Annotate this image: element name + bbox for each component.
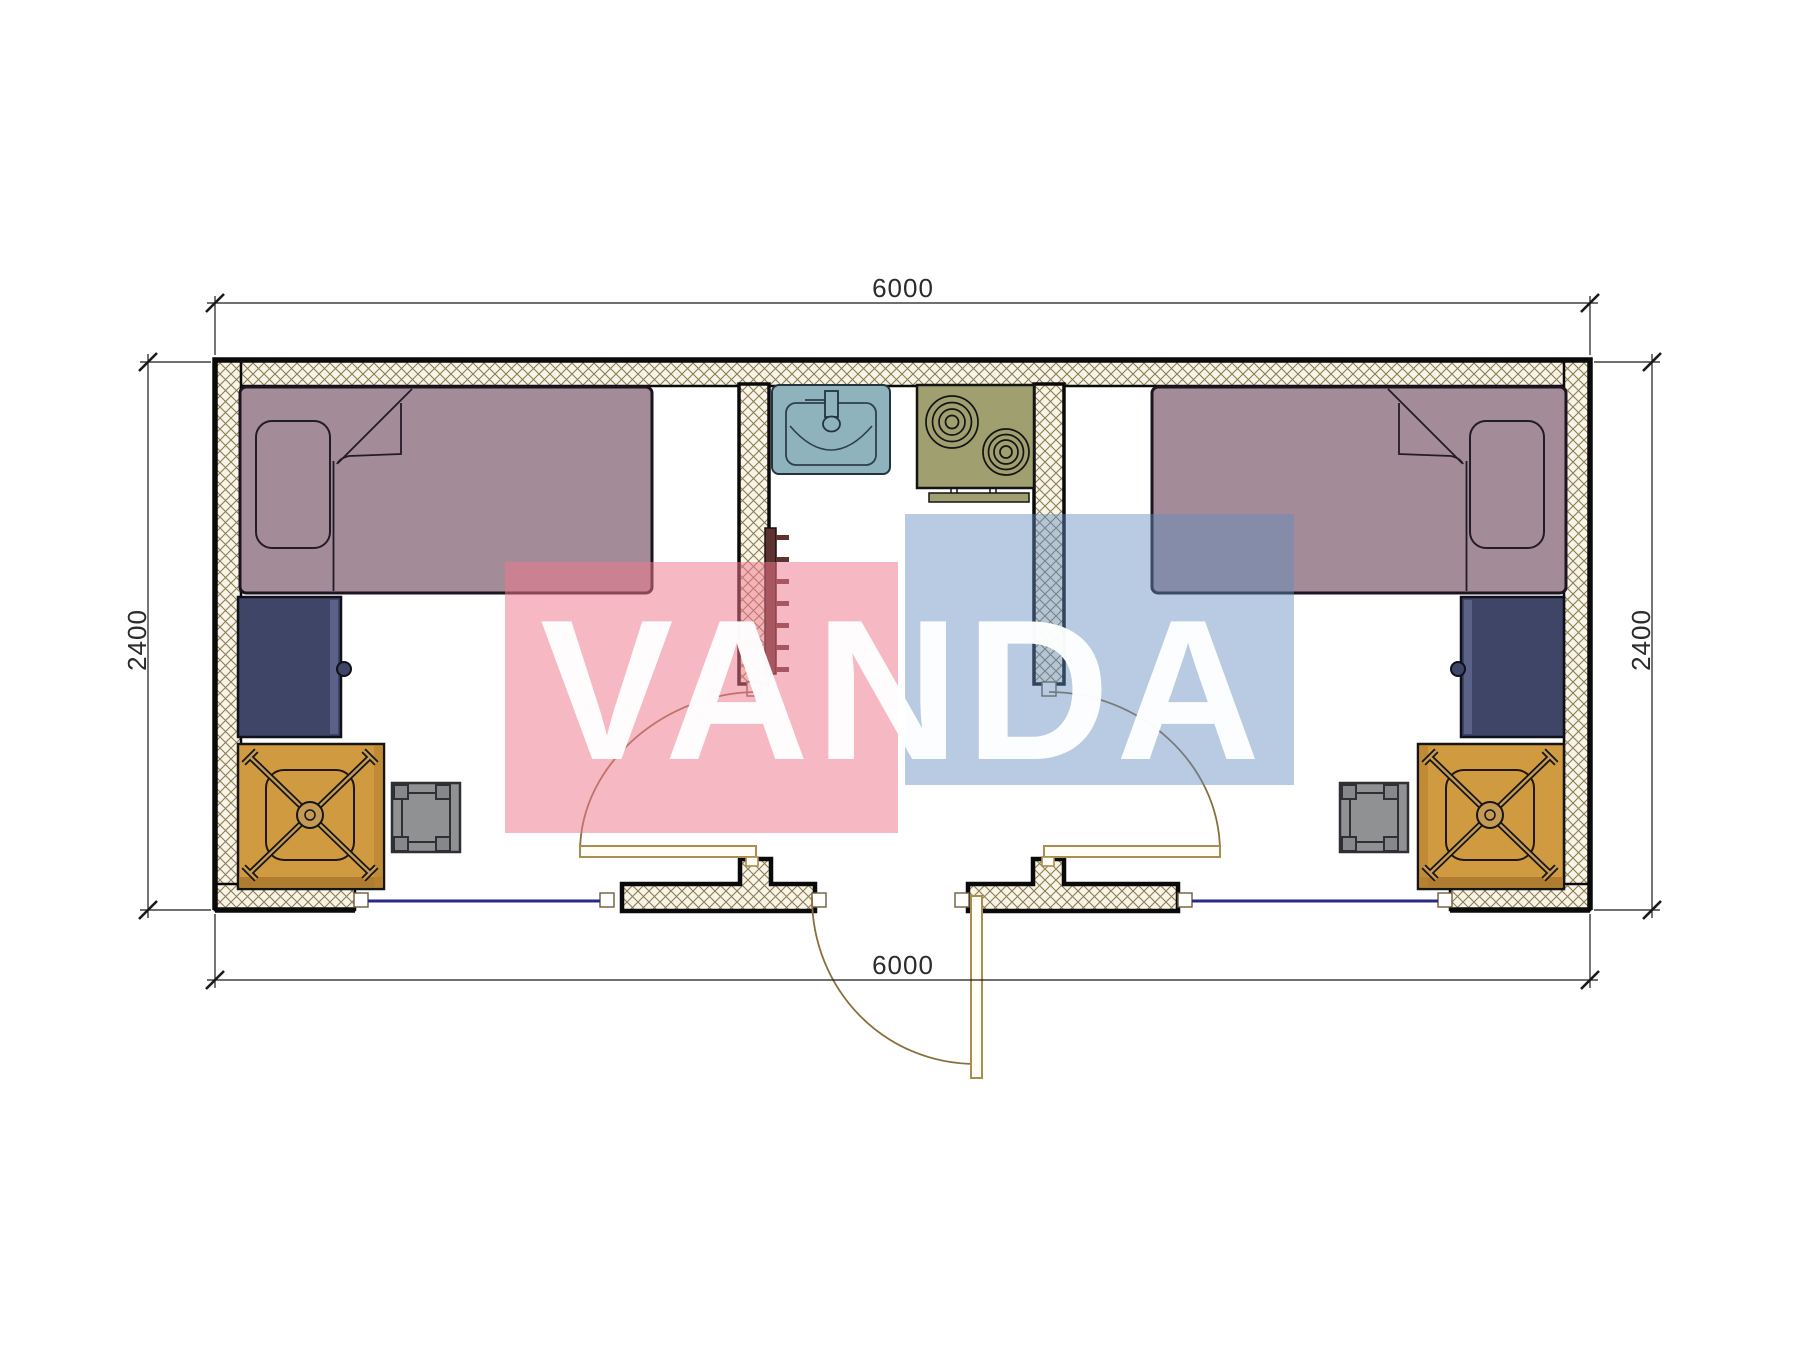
jamb bbox=[955, 893, 969, 907]
jamb bbox=[354, 893, 368, 907]
door-hinge-right bbox=[1042, 857, 1054, 866]
stool-leg bbox=[1384, 837, 1398, 851]
office-chair-right-hub bbox=[1477, 802, 1503, 828]
wall-top bbox=[215, 360, 1590, 386]
stove-front-panel bbox=[929, 493, 1029, 502]
stool-leg bbox=[394, 837, 408, 851]
cabinet-knob-right bbox=[1451, 662, 1465, 676]
stool-leg bbox=[1384, 785, 1398, 799]
watermark-text: VANDA bbox=[540, 591, 1266, 791]
stool-leg bbox=[436, 837, 450, 851]
stool-leg bbox=[1342, 785, 1356, 799]
dim-text-top: 6000 bbox=[872, 273, 934, 303]
wall-right bbox=[1564, 360, 1590, 910]
jamb bbox=[812, 893, 826, 907]
cabinet-right bbox=[1461, 597, 1564, 737]
door-leaf-entrance bbox=[971, 896, 982, 1078]
sink-drain bbox=[823, 417, 840, 432]
dim-text-bottom: 6000 bbox=[872, 950, 934, 980]
office-chair-left-hub bbox=[297, 802, 323, 828]
door-hinge-left bbox=[746, 857, 758, 866]
jamb bbox=[600, 893, 614, 907]
cabinet-knob-left bbox=[337, 662, 351, 676]
dim-text-right: 2400 bbox=[1626, 609, 1656, 671]
jamb bbox=[1438, 893, 1452, 907]
door-leaf-left bbox=[580, 846, 756, 857]
stool-leg bbox=[394, 785, 408, 799]
sink-faucet bbox=[825, 391, 838, 417]
door-leaf-right bbox=[1044, 846, 1220, 857]
jamb bbox=[1178, 893, 1192, 907]
dim-text-left: 2400 bbox=[122, 609, 152, 671]
t-wall-right bbox=[968, 859, 1178, 911]
stool-leg bbox=[1342, 837, 1356, 851]
desk-left-bevel-bottom bbox=[240, 877, 382, 887]
stool-leg bbox=[436, 785, 450, 799]
desk-right-bevel-bottom bbox=[1420, 877, 1562, 887]
cabinet-left bbox=[238, 597, 341, 737]
t-wall-left bbox=[622, 859, 815, 911]
floorplan-canvas: 6000 6000 2400 2400 VANDA bbox=[0, 0, 1800, 1350]
